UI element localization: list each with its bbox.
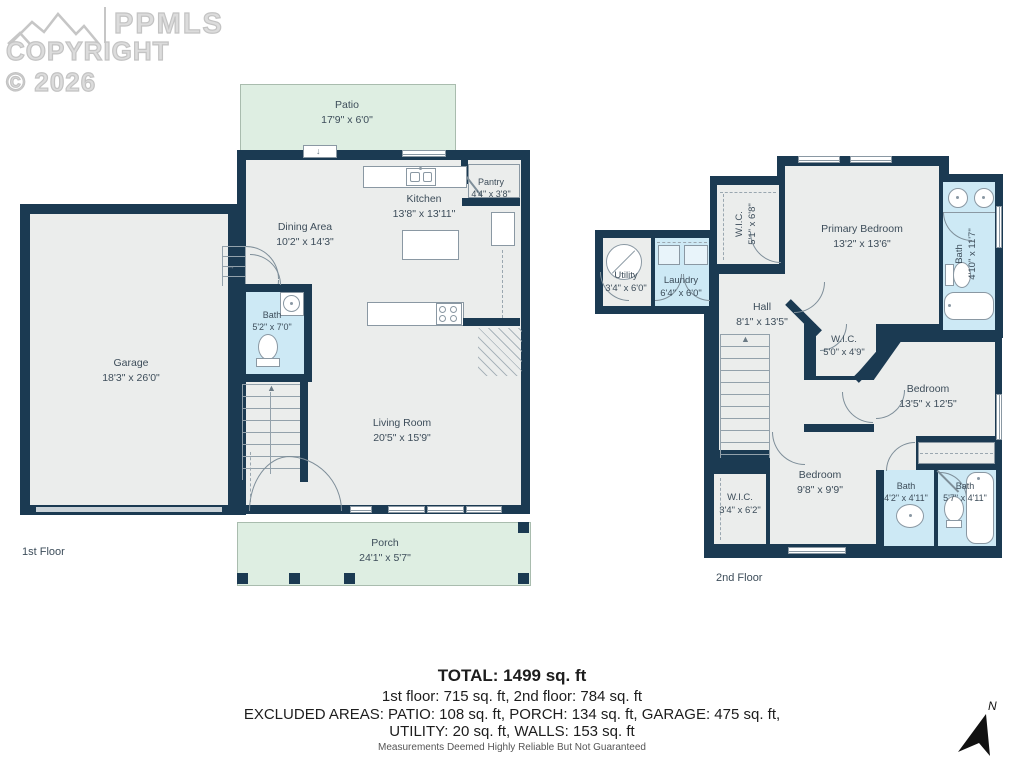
faucet-icon [977,477,980,480]
floor1-label: 1st Floor [22,546,65,558]
bath-wall [304,284,312,382]
closet-rod-dashed [920,453,993,454]
faucet-icon [956,196,959,199]
living-window [350,506,372,513]
garage-door [36,507,222,512]
room-label-primary: Primary Bedroom 13'2" x 13'6" [802,222,922,252]
porch-post [344,573,355,584]
toilet-icon [258,334,278,360]
room-label-pantry: Pantry 4'4" x 3'8" [461,177,521,200]
living-window [388,506,425,513]
room-label-living: Living Room 20'5" x 15'9" [342,416,462,446]
room-label-laundry: Laundry 6'4" x 6'0" [650,275,712,300]
logo-copyright: COPYRIGHT © 2026 [6,36,170,98]
bedroom-window [996,394,1002,440]
fridge-icon [491,212,515,246]
faucet-icon [909,514,912,517]
room-label-patio: Patio 17'9" x 6'0" [287,98,407,128]
stairwell [720,334,770,458]
kitchen-island [402,230,459,260]
bedroom-window [788,547,846,554]
porch-post [237,573,248,584]
bath-wall [238,374,312,382]
room-label-bath-br: Bath 5'7" x 4'11" [934,481,996,504]
toilet-tank [946,520,962,528]
primary-window [850,156,892,163]
summary-total: TOTAL: 1499 sq. ft [0,666,1024,686]
primary-window [798,156,840,163]
bath-window [996,206,1002,248]
faucet-icon [290,302,293,305]
burner [450,315,457,322]
stair-hatch [478,328,522,376]
sink-basin [423,172,432,182]
north-arrow-icon: N [948,698,1012,762]
summary-floors: 1st floor: 715 sq. ft, 2nd floor: 784 sq… [0,688,1024,705]
porch-post [289,573,300,584]
room-label-garage: Garage 18'3" x 26'0" [71,356,191,386]
room-label-utility: Utility 3'4" x 6'0" [597,270,655,295]
room-label-hall: Hall 8'1" x 13'5" [702,300,822,330]
room-label-bedroom-right: Bedroom 13'5" x 12'5" [868,382,988,412]
floorplan-page: PPMLS COPYRIGHT © 2026 Patio 17'9" x 6'0… [0,0,1024,767]
wic-dashed [723,194,724,260]
living-window [466,506,502,513]
room-label-bath-right: Bath 4'10" x 11'7" [954,209,982,299]
burner [450,306,457,313]
room-label-dining: Dining Area 10'2" x 14'3" [245,220,365,250]
kitchen-wall [463,318,520,326]
faucet-icon [948,304,951,307]
faucet-icon [982,196,985,199]
stairs-up-arrow-icon: ▲ [267,384,276,393]
room-label-bedroom-bottom: Bedroom 9'8" x 9'9" [760,468,880,498]
dryer-icon [684,245,708,265]
entry-arrow-icon: ↓ [316,147,321,156]
sink-basin [410,172,420,182]
summary-excluded-1: EXCLUDED AREAS: PATIO: 108 sq. ft, PORCH… [0,706,1024,723]
toilet-tank [256,358,280,367]
porch-post [518,522,529,533]
stairs-up-arrow-icon: ▲ [741,335,750,344]
room-label-porch: Porch 24'1" x 5'7" [325,536,445,566]
room-label-wic-top: W.I.C. 5'1" x 6'8" [734,179,762,269]
summary-disclaimer: Measurements Deemed Highly Reliable But … [0,742,1024,753]
kitchen-window [402,150,446,157]
steps-arrow-icon: → [226,262,235,271]
burner [439,315,446,322]
laundry-dashed [657,242,707,243]
counter-dashed-edge [502,250,503,318]
floor2-label: 2nd Floor [716,572,762,584]
burner [439,306,446,313]
faucet-icon [419,167,422,170]
porch-post [518,573,529,584]
washer-icon [658,245,680,265]
room-label-bath1: Bath 5'2" x 7'0" [244,310,300,333]
summary-excluded-2: UTILITY: 20 sq. ft, WALLS: 153 sq. ft [0,723,1024,740]
room-label-wic-mid: W.I.C. 5'0" x 4'9" [814,334,874,359]
bath-wall [238,284,312,292]
room-label-bath-bl: Bath 4'2" x 4'11" [878,481,934,504]
compass-n-label: N [988,699,997,713]
living-window [427,506,464,513]
